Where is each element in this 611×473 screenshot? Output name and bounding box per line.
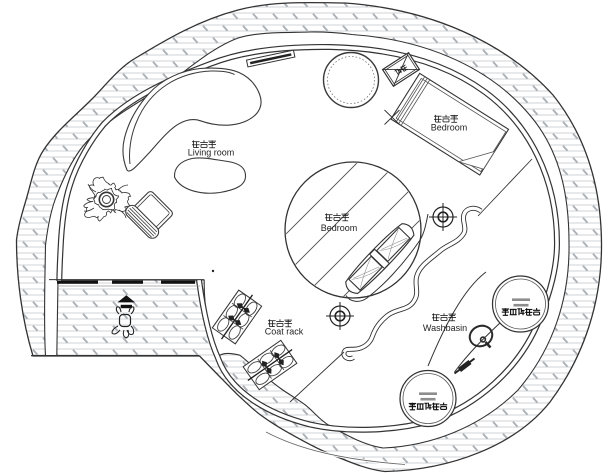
svg-text:Washbasin: Washbasin (423, 323, 467, 333)
svg-text:Coat rack: Coat rack (265, 327, 304, 337)
svg-text:Bedroom: Bedroom (431, 123, 468, 133)
svg-text:Bedroom: Bedroom (321, 223, 358, 233)
svg-text:Living room: Living room (188, 148, 235, 158)
